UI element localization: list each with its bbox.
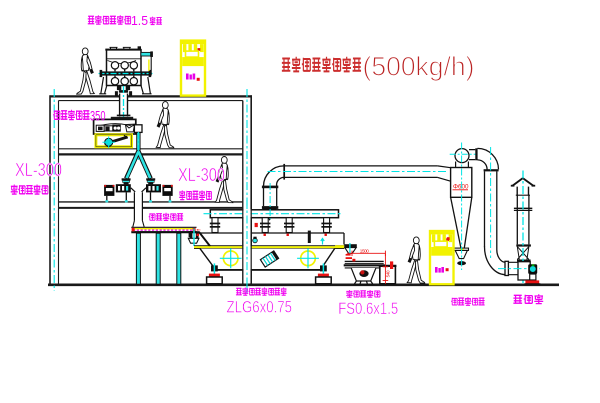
svg-text:1.5: 1.5 <box>131 13 148 28</box>
svg-text:(500kg/h): (500kg/h) <box>363 52 475 82</box>
svg-text:540: 540 <box>385 270 390 277</box>
svg-text:ZLG6x0.75: ZLG6x0.75 <box>227 298 293 317</box>
svg-text:FS0.6x1.5: FS0.6x1.5 <box>338 299 398 318</box>
svg-text:XL-300: XL-300 <box>178 164 225 185</box>
svg-text:350: 350 <box>90 108 106 124</box>
svg-text:1500: 1500 <box>360 248 369 253</box>
svg-text:XL-300: XL-300 <box>15 159 62 180</box>
